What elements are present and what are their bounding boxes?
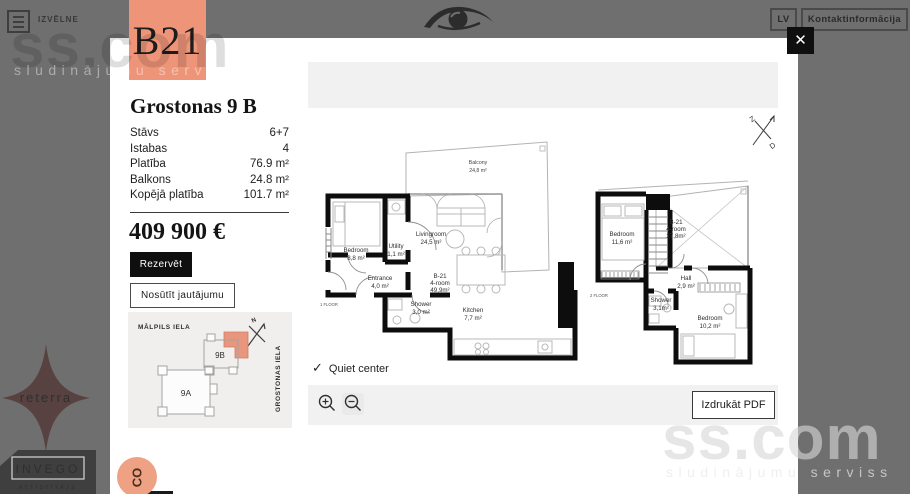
detail-label: Istabas bbox=[130, 142, 167, 158]
send-question-button[interactable]: Nosūtīt jautājumu bbox=[130, 283, 235, 308]
feature-label: Quiet center bbox=[329, 363, 389, 375]
room-area: 24,8 m² bbox=[469, 168, 487, 174]
zoom-in-icon bbox=[317, 393, 337, 413]
detail-row-floor: Stāvs 6+7 bbox=[130, 126, 289, 142]
map-compass-n: N bbox=[251, 317, 257, 324]
contact-info-button[interactable]: Kontaktinformācija bbox=[801, 8, 908, 31]
detail-table: Stāvs 6+7 Istabas 4 Platība 76.9 m² Balk… bbox=[130, 126, 289, 204]
building-9b-label: 9B bbox=[215, 351, 225, 360]
menu-button[interactable] bbox=[7, 10, 30, 33]
location-map[interactable]: MĀLPILS IELA N 9A bbox=[128, 312, 292, 428]
detail-value: 76.9 m² bbox=[250, 157, 289, 173]
street-label-top: MĀLPILS IELA bbox=[138, 323, 190, 331]
chat-widget-button[interactable]: CO bbox=[117, 457, 157, 494]
detail-label: Balkons bbox=[130, 173, 171, 189]
room-area: 3,1m² bbox=[653, 305, 669, 312]
wall-block bbox=[646, 194, 670, 210]
eye-logo-icon bbox=[420, 2, 496, 34]
chat-widget-label: CO bbox=[130, 467, 145, 487]
detail-value: 6+7 bbox=[269, 126, 289, 142]
listing-title: Grostonas 9 B bbox=[130, 94, 257, 119]
room-area: 11,6 m² bbox=[612, 239, 633, 246]
check-icon: ✓ bbox=[312, 360, 323, 375]
room-label: Bedroom bbox=[609, 231, 634, 238]
floor-plan-1: Balcony 24,8 m² bbox=[318, 122, 610, 374]
unit-label: B-21 bbox=[433, 273, 447, 280]
invego-logo-text: INVEGO bbox=[16, 462, 81, 476]
unit-area: 49,9m² bbox=[430, 287, 449, 294]
plan-compass-icon: Z D bbox=[748, 108, 780, 152]
unit-area: 27,8m² bbox=[666, 233, 685, 240]
room-label: Hall bbox=[681, 275, 692, 282]
zoom-in-button[interactable] bbox=[316, 393, 338, 415]
invego-tagline: ATTĪSTĪTĀJS bbox=[19, 484, 77, 491]
menu-label: IZVĒLNE bbox=[38, 15, 79, 24]
room-area: 2,9 m² bbox=[677, 283, 695, 290]
room-area: 10,2 m² bbox=[700, 323, 721, 330]
room-area: 7,7 m² bbox=[464, 315, 482, 322]
invego-logo: INVEGO ATTĪSTĪTĀJS bbox=[0, 450, 96, 494]
zoom-out-icon bbox=[343, 393, 363, 413]
feature-row: ✓Quiet center bbox=[312, 360, 389, 376]
hamburger-icon bbox=[13, 16, 24, 18]
street-label-right: GROSTONAS IELA bbox=[275, 345, 282, 412]
floor-plan-2: Bedroom 11,6 m² B-21 4-room 27,8m² Hall … bbox=[588, 176, 760, 368]
room-label: Utility bbox=[388, 243, 404, 250]
map-compass-icon bbox=[248, 324, 265, 346]
unit-type: 4-room bbox=[430, 280, 450, 287]
close-button[interactable]: ✕ bbox=[787, 27, 814, 54]
stairs bbox=[648, 217, 668, 273]
unit-type: 4-room bbox=[666, 226, 686, 233]
detail-label: Stāvs bbox=[130, 126, 159, 142]
room-label: Livingroom bbox=[416, 231, 446, 238]
price: 409 900 € bbox=[129, 219, 225, 246]
floor-label: 2 FLOOR bbox=[590, 293, 608, 298]
b21-logo[interactable]: B21 bbox=[129, 0, 206, 80]
room-label: Shower bbox=[651, 297, 672, 304]
building-9b-highlight bbox=[224, 332, 248, 358]
detail-value: 101.7 m² bbox=[244, 188, 289, 204]
page: IZVĒLNE LV Kontaktinformācija Grostonas … bbox=[0, 0, 910, 494]
reterra-logo: reterra bbox=[0, 342, 92, 454]
room-area: 8,8 m² bbox=[347, 255, 365, 262]
listing-modal: Grostonas 9 B Stāvs 6+7 Istabas 4 Platīb… bbox=[110, 38, 798, 494]
detail-value: 24.8 m² bbox=[250, 173, 289, 189]
room-area: 1,1 m² bbox=[387, 251, 405, 258]
b21-logo-text: B21 bbox=[133, 17, 203, 64]
building-9a-label: 9A bbox=[181, 388, 192, 398]
detail-row-total-area: Kopējā platība 101.7 m² bbox=[130, 188, 289, 204]
reterra-logo-text: reterra bbox=[20, 390, 72, 405]
detail-label: Kopējā platība bbox=[130, 188, 204, 204]
print-pdf-button[interactable]: Izdrukāt PDF bbox=[692, 391, 775, 419]
room-label: Entrance bbox=[368, 275, 393, 282]
walls bbox=[328, 196, 575, 358]
unit-label: B-21 bbox=[669, 219, 683, 226]
wall-block bbox=[558, 262, 574, 328]
detail-row-area: Platība 76.9 m² bbox=[130, 157, 289, 173]
plan-viewer-top-band bbox=[308, 62, 778, 108]
room-area: 3,0 m² bbox=[412, 309, 430, 316]
detail-label: Platība bbox=[130, 157, 166, 173]
compass-south-label: D bbox=[768, 140, 778, 151]
room-area: 4,0 m² bbox=[371, 283, 389, 290]
detail-value: 4 bbox=[283, 142, 289, 158]
compass-north-label: Z bbox=[748, 114, 757, 124]
room-label: Kitchen bbox=[463, 307, 484, 314]
floor-label: 1 FLOOR bbox=[320, 302, 338, 307]
room-label: Shower bbox=[411, 301, 432, 308]
divider bbox=[130, 212, 289, 213]
reserve-button[interactable]: Rezervēt bbox=[130, 252, 192, 277]
room-area: 24,5 m² bbox=[421, 239, 442, 246]
room-label: Balcony bbox=[469, 160, 488, 166]
zoom-out-button[interactable] bbox=[342, 393, 364, 415]
detail-row-balcony: Balkons 24.8 m² bbox=[130, 173, 289, 189]
room-label: Bedroom bbox=[343, 247, 368, 254]
detail-row-rooms: Istabas 4 bbox=[130, 142, 289, 158]
room-label: Bedroom bbox=[697, 315, 722, 322]
